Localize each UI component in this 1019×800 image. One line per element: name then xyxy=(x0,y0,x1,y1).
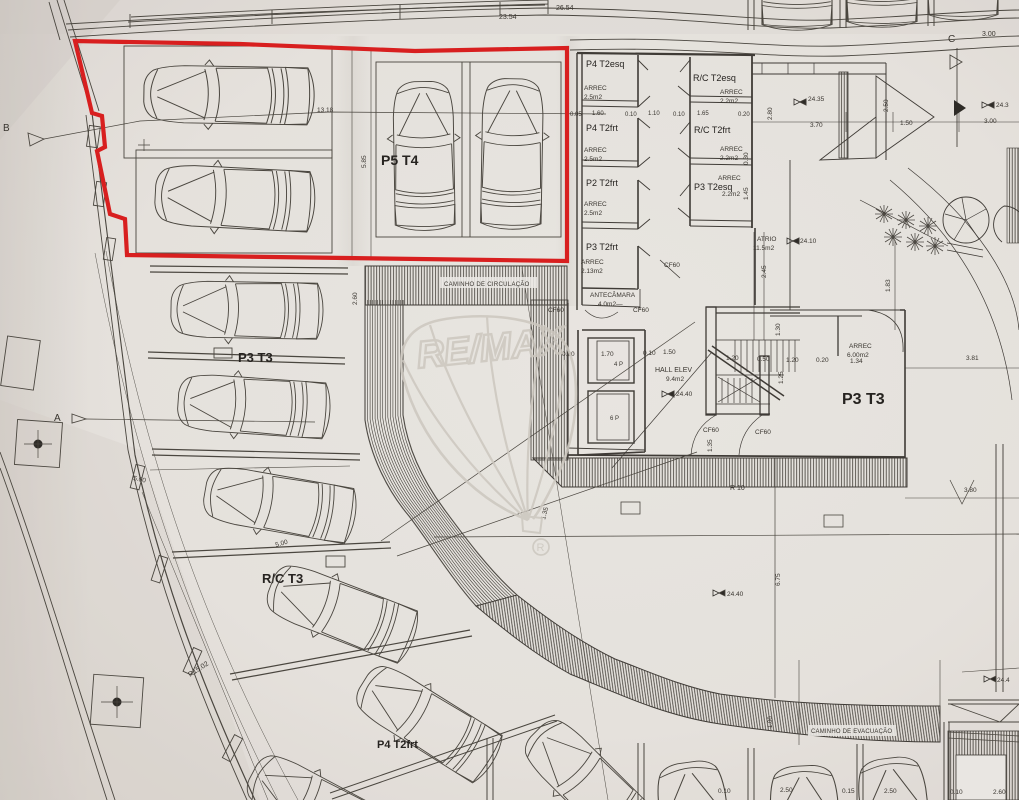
svg-text:9.4m2: 9.4m2 xyxy=(666,376,684,383)
svg-text:ANTECÂMARA: ANTECÂMARA xyxy=(590,290,636,299)
svg-text:R/C T2frt: R/C T2frt xyxy=(694,125,731,135)
svg-text:24.40: 24.40 xyxy=(676,391,693,398)
svg-text:3.80: 3.80 xyxy=(964,487,977,494)
svg-text:ARREC: ARREC xyxy=(584,85,607,92)
svg-text:2.5m2: 2.5m2 xyxy=(584,94,602,101)
svg-text:1.83: 1.83 xyxy=(885,279,892,292)
svg-text:ARREC: ARREC xyxy=(718,175,741,182)
svg-text:CF60: CF60 xyxy=(664,262,680,269)
svg-text:R/C T2esq: R/C T2esq xyxy=(693,73,736,83)
svg-text:2.60: 2.60 xyxy=(352,292,359,305)
svg-text:0.10: 0.10 xyxy=(625,112,637,118)
svg-text:ARREC: ARREC xyxy=(849,343,872,350)
svg-text:ARREC: ARREC xyxy=(720,146,743,153)
svg-text:1.60: 1.60 xyxy=(592,111,604,117)
svg-text:1.70: 1.70 xyxy=(601,351,614,358)
svg-text:CAMINHO DE EVACUAÇÃO: CAMINHO DE EVACUAÇÃO xyxy=(811,728,892,735)
svg-text:1.35: 1.35 xyxy=(707,439,714,452)
svg-text:24.35: 24.35 xyxy=(808,96,825,103)
svg-text:ATRIO: ATRIO xyxy=(757,236,776,243)
svg-text:CAMINHO DE CIRCULAÇÃO: CAMINHO DE CIRCULAÇÃO xyxy=(444,281,530,288)
svg-text:6.75: 6.75 xyxy=(775,573,782,586)
svg-text:0.10: 0.10 xyxy=(950,789,963,796)
svg-text:2.80: 2.80 xyxy=(767,107,774,120)
svg-text:24.4: 24.4 xyxy=(997,677,1010,684)
svg-text:24.40: 24.40 xyxy=(727,591,744,598)
svg-text:R/C T3: R/C T3 xyxy=(262,571,303,586)
svg-text:1.34: 1.34 xyxy=(850,358,863,365)
svg-text:CF60: CF60 xyxy=(755,429,771,436)
svg-text:P4 T2frt: P4 T2frt xyxy=(377,739,418,751)
svg-text:2.50: 2.50 xyxy=(883,99,890,112)
svg-text:6 P: 6 P xyxy=(610,416,619,422)
svg-text:1.20: 1.20 xyxy=(786,357,799,364)
svg-text:1.45: 1.45 xyxy=(743,187,750,200)
svg-text:0.50: 0.50 xyxy=(757,356,770,363)
svg-text:1.00: 1.00 xyxy=(768,716,774,728)
svg-text:2.50: 2.50 xyxy=(884,788,897,795)
svg-text:13.18: 13.18 xyxy=(317,107,334,114)
svg-text:CF60: CF60 xyxy=(548,307,564,314)
svg-text:B: B xyxy=(3,123,10,134)
svg-text:C: C xyxy=(948,34,955,45)
svg-text:3.70: 3.70 xyxy=(810,122,823,129)
svg-text:0.20: 0.20 xyxy=(738,112,750,118)
svg-text:2.13m2: 2.13m2 xyxy=(581,268,603,275)
svg-text:26.54: 26.54 xyxy=(556,5,574,12)
svg-text:P2 T2frt: P2 T2frt xyxy=(586,178,618,188)
svg-text:P3 T3: P3 T3 xyxy=(842,391,885,408)
svg-text:HALL ELEV: HALL ELEV xyxy=(655,367,692,374)
svg-text:23.54: 23.54 xyxy=(499,14,517,21)
svg-text:6.00m2: 6.00m2 xyxy=(847,352,869,359)
svg-text:R 10: R 10 xyxy=(730,485,745,492)
svg-text:5.85: 5.85 xyxy=(361,155,368,168)
svg-text:2.5m2: 2.5m2 xyxy=(584,210,602,217)
svg-text:0.10: 0.10 xyxy=(718,788,731,795)
svg-text:P5 T4: P5 T4 xyxy=(381,152,419,168)
svg-text:4 P: 4 P xyxy=(614,362,623,368)
svg-text:P4 T2frt: P4 T2frt xyxy=(586,123,618,133)
svg-text:0.10: 0.10 xyxy=(673,112,685,118)
svg-text:3.81: 3.81 xyxy=(966,355,979,362)
svg-text:1.50: 1.50 xyxy=(900,120,913,127)
svg-text:CF60: CF60 xyxy=(633,307,649,314)
svg-text:1.10: 1.10 xyxy=(648,111,660,117)
svg-text:1.20: 1.20 xyxy=(726,355,739,362)
svg-text:1.30: 1.30 xyxy=(775,323,782,336)
svg-text:R: R xyxy=(537,542,545,554)
svg-text:0.15: 0.15 xyxy=(842,788,855,795)
svg-text:P3 T3: P3 T3 xyxy=(238,350,273,365)
svg-text:ARREC: ARREC xyxy=(720,89,743,96)
svg-text:2.50: 2.50 xyxy=(780,787,793,794)
svg-text:P4 T2esq: P4 T2esq xyxy=(586,59,624,69)
svg-text:0.05: 0.05 xyxy=(570,112,582,118)
svg-text:1.25: 1.25 xyxy=(778,371,785,384)
svg-text:3.00: 3.00 xyxy=(984,118,997,125)
svg-text:1.50: 1.50 xyxy=(663,349,676,356)
svg-text:24.10: 24.10 xyxy=(800,238,817,245)
svg-text:11.5m2: 11.5m2 xyxy=(753,245,775,252)
svg-text:1.65: 1.65 xyxy=(697,111,709,117)
svg-text:CF60: CF60 xyxy=(703,427,719,434)
svg-text:2.5m2: 2.5m2 xyxy=(584,156,602,163)
svg-text:ARREC: ARREC xyxy=(581,259,604,266)
svg-text:3.00: 3.00 xyxy=(982,31,996,38)
svg-text:P3 T2frt: P3 T2frt xyxy=(586,242,618,252)
svg-text:2.2m2: 2.2m2 xyxy=(722,191,740,198)
svg-text:2.2m2: 2.2m2 xyxy=(720,98,738,105)
svg-text:4.0m2—: 4.0m2— xyxy=(598,301,623,308)
svg-text:ARREC: ARREC xyxy=(584,147,607,154)
svg-text:ARREC: ARREC xyxy=(584,201,607,208)
svg-text:2.45: 2.45 xyxy=(761,265,768,278)
svg-text:0.30: 0.30 xyxy=(743,152,750,165)
svg-text:2.60: 2.60 xyxy=(993,789,1006,796)
svg-text:24.3: 24.3 xyxy=(996,102,1009,109)
svg-text:0.20: 0.20 xyxy=(816,357,829,364)
svg-text:2.2m2: 2.2m2 xyxy=(720,155,738,162)
